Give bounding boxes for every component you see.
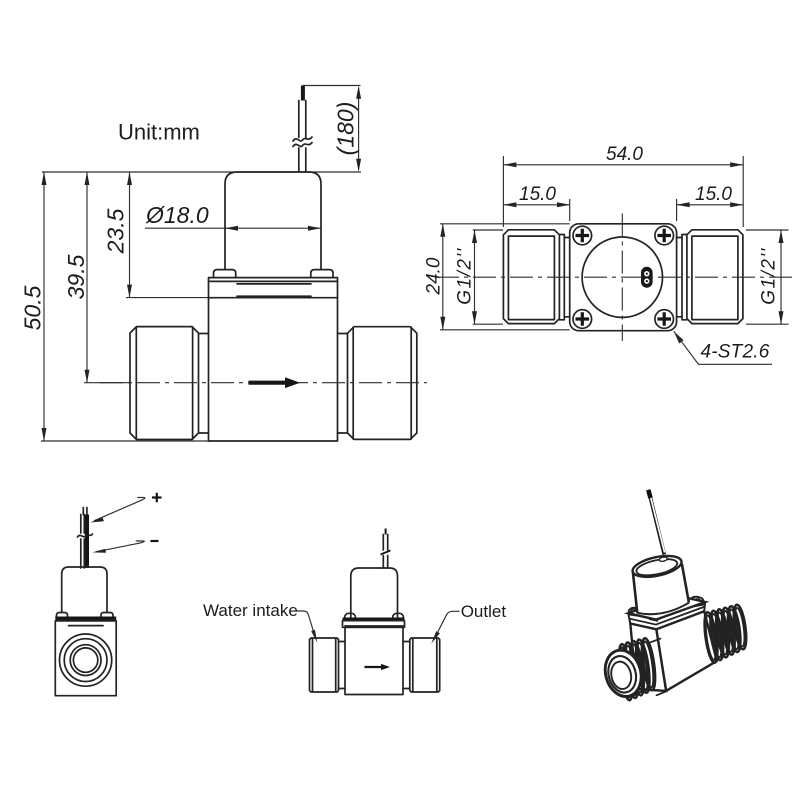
svg-text:Ø18.0: Ø18.0: [145, 202, 209, 228]
svg-text:39.5: 39.5: [63, 254, 89, 299]
svg-text:15.0: 15.0: [519, 184, 556, 205]
svg-text:24.0: 24.0: [424, 257, 445, 295]
svg-text:G1/2'': G1/2'': [759, 247, 780, 304]
svg-text:(180): (180): [333, 102, 359, 156]
svg-text:15.0: 15.0: [695, 184, 732, 205]
svg-text:G1/2'': G1/2'': [455, 247, 476, 304]
svg-text:23.5: 23.5: [103, 208, 129, 254]
svg-text:54.0: 54.0: [606, 144, 643, 165]
svg-text:Outlet: Outlet: [461, 602, 507, 621]
svg-text:4-ST2.6: 4-ST2.6: [701, 342, 770, 363]
svg-text:Unit:mm: Unit:mm: [118, 120, 200, 145]
svg-text:50.5: 50.5: [20, 285, 46, 330]
svg-text:Water intake: Water intake: [203, 601, 298, 620]
